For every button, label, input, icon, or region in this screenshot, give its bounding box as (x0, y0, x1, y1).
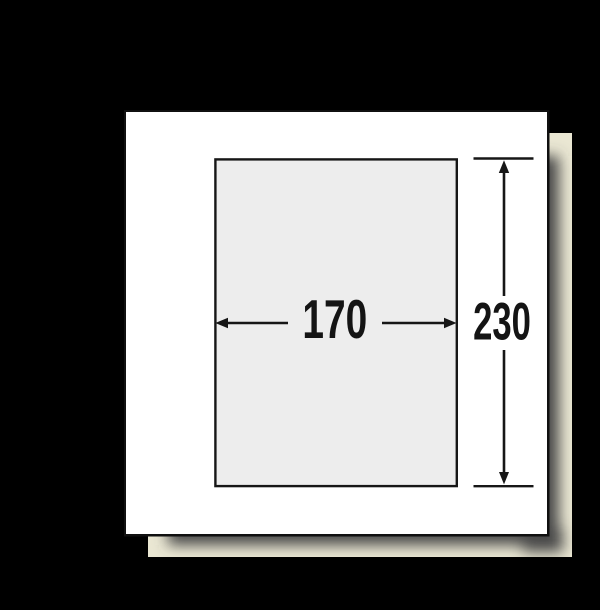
svg-text:170: 170 (302, 290, 367, 351)
svg-text:230: 230 (473, 291, 531, 351)
